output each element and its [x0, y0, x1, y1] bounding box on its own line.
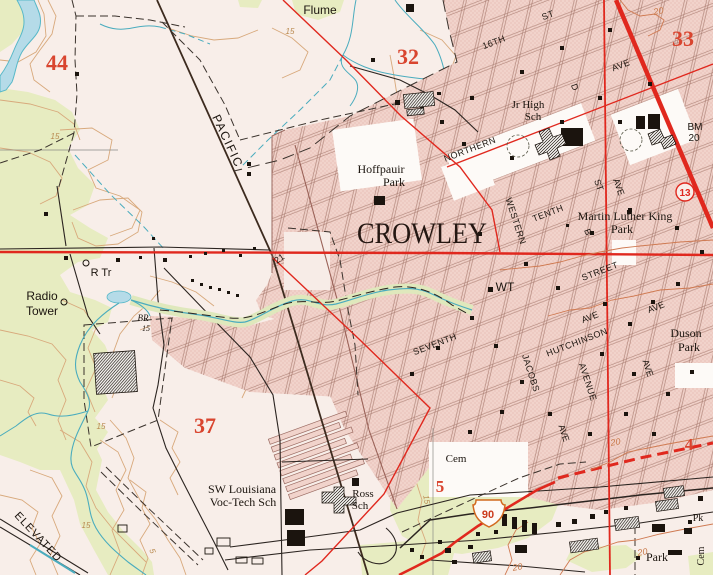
- svg-text:Sch: Sch: [352, 500, 369, 512]
- svg-text:Flume: Flume: [303, 3, 337, 17]
- svg-text:15: 15: [51, 132, 60, 141]
- svg-text:4: 4: [685, 435, 694, 454]
- svg-text:Park: Park: [678, 340, 700, 354]
- svg-text:5: 5: [436, 477, 445, 496]
- svg-text:Duson: Duson: [670, 326, 701, 340]
- svg-text:20: 20: [511, 561, 524, 573]
- svg-text:13: 13: [679, 188, 691, 199]
- svg-text:BM: BM: [688, 122, 703, 133]
- svg-text:Cem: Cem: [696, 546, 707, 565]
- svg-text:Cem: Cem: [446, 453, 467, 465]
- svg-text:15: 15: [97, 422, 106, 431]
- svg-text:Voc-Tech Sch: Voc-Tech Sch: [210, 495, 277, 509]
- svg-text:32: 32: [397, 44, 419, 69]
- svg-text:R Tr: R Tr: [91, 267, 112, 279]
- svg-text:Martin Luther King: Martin Luther King: [578, 209, 673, 223]
- svg-text:Pk: Pk: [693, 513, 704, 524]
- svg-text:Hoffpauir: Hoffpauir: [357, 162, 404, 176]
- svg-text:20: 20: [636, 546, 649, 558]
- svg-text:Radio: Radio: [26, 289, 58, 303]
- svg-text:Park: Park: [646, 550, 668, 564]
- svg-text:15: 15: [142, 324, 150, 333]
- svg-text:BR: BR: [138, 313, 149, 323]
- svg-text:20: 20: [609, 436, 622, 448]
- svg-text:44: 44: [46, 50, 68, 75]
- svg-text:CROWLEY: CROWLEY: [357, 217, 487, 250]
- svg-text:37: 37: [194, 413, 216, 438]
- svg-text:Jr High: Jr High: [512, 99, 545, 111]
- svg-text:Park: Park: [383, 175, 405, 189]
- svg-text:15: 15: [286, 27, 295, 36]
- svg-text:20: 20: [688, 133, 700, 144]
- svg-text:Sch: Sch: [525, 111, 542, 123]
- svg-text:Tower: Tower: [26, 304, 58, 318]
- svg-text:WT: WT: [496, 280, 515, 294]
- svg-text:90: 90: [482, 509, 494, 521]
- svg-text:Ross: Ross: [352, 488, 373, 500]
- svg-text:Park: Park: [611, 222, 633, 236]
- svg-text:SW Louisiana: SW Louisiana: [208, 482, 277, 496]
- svg-text:33: 33: [672, 26, 694, 51]
- svg-text:15: 15: [82, 521, 91, 530]
- svg-text:20: 20: [652, 5, 665, 17]
